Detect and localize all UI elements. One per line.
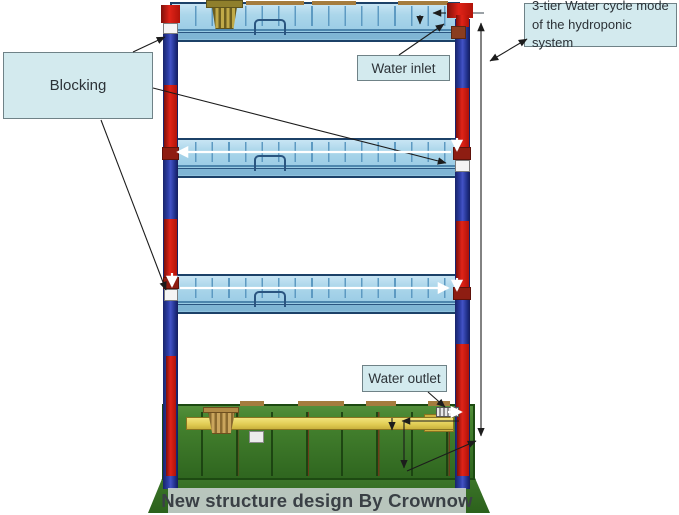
arrow-blocking-to-top-left	[133, 37, 165, 52]
net-pot-tank	[208, 412, 235, 434]
water-outlet-fitting	[436, 407, 459, 417]
tray-center-notch	[254, 19, 286, 35]
tray-floor-line	[175, 29, 455, 31]
tank-rim-tab	[240, 401, 264, 406]
tray-tab	[312, 1, 356, 5]
caption-band: New structure design By Crownow	[168, 488, 466, 513]
callout-blocking-label: Blocking	[50, 77, 107, 94]
tray-tab	[398, 1, 448, 5]
grow-tray-tier-3	[170, 274, 460, 314]
tank-rim-tab	[298, 401, 344, 406]
callout-cycle-mode-line2: of the hydroponic system	[532, 16, 676, 54]
right-pipe-segment-tier2	[456, 88, 469, 149]
tray-floor-line	[175, 165, 455, 167]
blocking-plug-left-tier3	[164, 289, 178, 301]
left-pipe-tank-drop	[166, 356, 176, 476]
right-pipe-segment-tier3	[456, 221, 469, 291]
tray-center-notch	[254, 155, 286, 171]
net-pot-flange-top	[206, 0, 243, 8]
blocking-plug-right-tier2	[455, 160, 470, 172]
callout-water-inlet-label: Water inlet	[371, 61, 435, 76]
net-pot-top	[212, 7, 237, 29]
callout-water-outlet-label: Water outlet	[368, 371, 440, 386]
arrow-blocking-to-tier3-left	[101, 120, 166, 290]
arrow-cycle-mode	[490, 39, 527, 61]
diagram-scene: Blocking Water inlet Water outlet 3-tier…	[0, 0, 679, 515]
grow-tray-tier-2	[170, 138, 460, 178]
left-pipe-top-cap	[161, 5, 180, 23]
tray-bottom-lip	[173, 168, 457, 175]
blocking-plug-left-top	[163, 23, 178, 34]
right-pipe-joint-tier3	[453, 287, 471, 300]
tank-float-block	[249, 431, 264, 443]
tray-center-notch	[254, 291, 286, 307]
callout-cycle-mode-line1: 3-tier Water cycle mode	[532, 0, 669, 16]
callout-water-outlet: Water outlet	[362, 365, 447, 392]
left-pipe-segment-tier2	[164, 85, 177, 150]
left-pipe-segment-tier3	[164, 219, 177, 279]
caption-text: New structure design By Crownow	[161, 490, 473, 512]
tank-rim-tab	[366, 401, 396, 406]
tray-bottom-lip	[173, 32, 457, 39]
tray-bottom-lip	[173, 304, 457, 311]
left-pipe-joint-tier2	[162, 147, 179, 160]
left-pipe-joint-tier3	[163, 277, 179, 289]
tray-floor-line	[175, 301, 455, 303]
callout-cycle-mode: 3-tier Water cycle mode of the hydroponi…	[524, 3, 677, 47]
tray-ribs	[180, 278, 450, 298]
tank-rim-tab	[428, 401, 450, 406]
water-inlet-coupler	[451, 26, 466, 39]
right-pipe-tank-drop	[457, 412, 469, 476]
right-pipe-segment-tank	[456, 344, 469, 412]
callout-blocking: Blocking	[3, 52, 153, 119]
tray-tab	[246, 1, 304, 5]
tray-ribs	[180, 142, 450, 162]
callout-water-inlet: Water inlet	[357, 55, 450, 81]
right-pipe-joint-tier2	[453, 147, 471, 160]
